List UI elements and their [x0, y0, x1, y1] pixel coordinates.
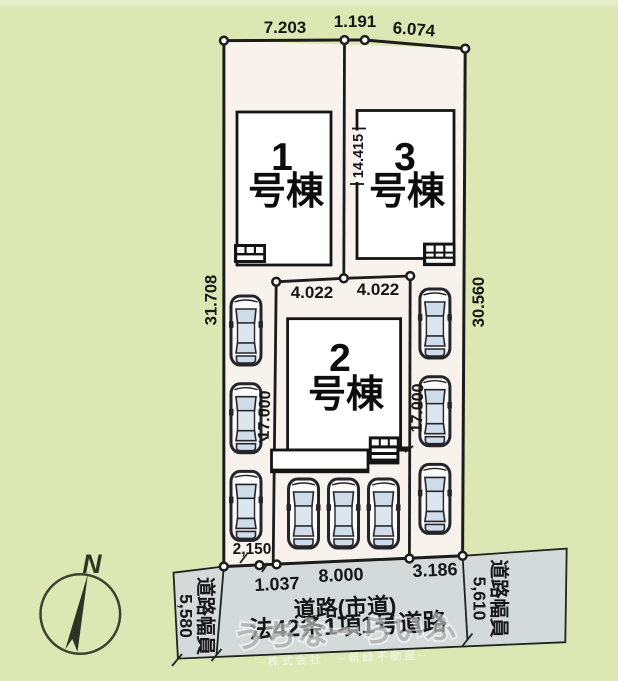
svg-text:6.074: 6.074 [392, 18, 436, 40]
svg-text:4.022: 4.022 [357, 280, 400, 299]
svg-text:号棟: 号棟 [248, 171, 325, 213]
svg-text:号棟: 号棟 [308, 374, 385, 416]
svg-text:30.560: 30.560 [470, 277, 488, 327]
svg-text:7.203: 7.203 [264, 18, 307, 37]
svg-text:N: N [82, 549, 102, 579]
svg-text:14.415: 14.415 [351, 134, 367, 178]
svg-text:3.186: 3.186 [412, 559, 458, 581]
svg-text:17.000: 17.000 [256, 390, 275, 440]
svg-text:4.022: 4.022 [291, 283, 334, 302]
svg-text:1.191: 1.191 [334, 12, 377, 31]
svg-text:号棟: 号棟 [369, 171, 446, 213]
svg-text:17.000: 17.000 [409, 383, 428, 433]
svg-text:1.037: 1.037 [254, 573, 300, 595]
svg-text:8.000: 8.000 [318, 564, 364, 586]
svg-text:2,150: 2,150 [233, 541, 272, 558]
svg-text:31.708: 31.708 [203, 275, 221, 325]
